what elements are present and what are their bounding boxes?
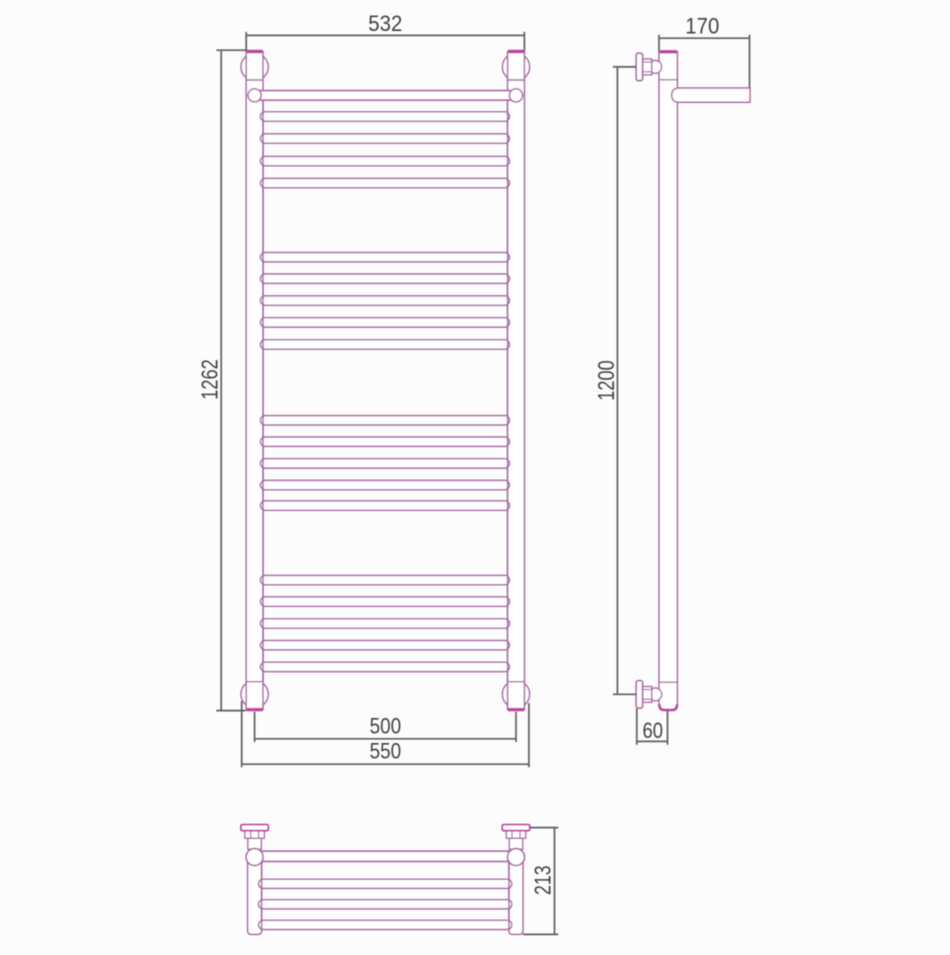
svg-text:1262: 1262 [197,359,223,400]
svg-text:500: 500 [370,713,402,738]
svg-text:60: 60 [643,718,664,743]
svg-text:170: 170 [685,13,719,38]
svg-text:213: 213 [530,865,556,895]
svg-text:1200: 1200 [593,360,619,401]
svg-text:550: 550 [370,739,402,764]
svg-text:532: 532 [368,11,402,36]
